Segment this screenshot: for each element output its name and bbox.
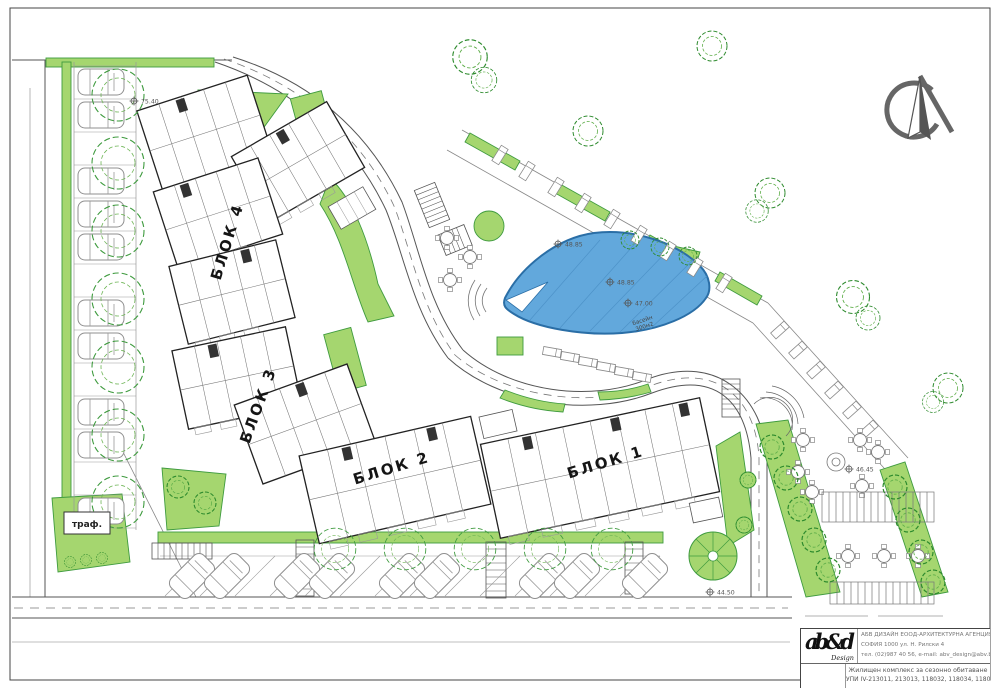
table-icon — [837, 545, 860, 568]
lounger-icon — [519, 161, 535, 181]
building-terrace — [479, 409, 517, 438]
table-icon — [439, 269, 462, 292]
lounger-icon — [632, 371, 651, 382]
project-info: Жилищен комплекс за сезонно обитаване УП… — [846, 664, 990, 688]
car-icon — [78, 399, 124, 425]
lounger-icon — [578, 356, 597, 367]
tree-icon — [573, 116, 603, 146]
lounger-icon — [542, 346, 561, 357]
table-icon — [436, 227, 459, 250]
hedge-bottom — [158, 532, 663, 543]
agency-info: АБВ ДИЗАЙН ЕООД-АРХИТЕКТУРНА АГЕНЦИЯ СОФ… — [858, 629, 990, 663]
title-block-project-row: Жилищен комплекс за сезонно обитаване УП… — [801, 664, 990, 688]
car-icon — [552, 551, 603, 602]
elevation-value: 48.85 — [617, 280, 635, 287]
lounger-icon — [596, 361, 615, 372]
lounger-icon — [771, 321, 790, 339]
table-icon — [867, 441, 890, 464]
table-icon — [873, 545, 896, 568]
agency-logo-script: Design — [831, 654, 854, 662]
car-icon — [78, 333, 124, 359]
car-icon — [78, 168, 124, 194]
hedge-left — [62, 62, 71, 530]
transformer-label: траф. — [72, 520, 102, 530]
tree-icon — [453, 40, 488, 75]
transformer-station: траф. — [64, 512, 110, 534]
site-plan-drawing: траф. БЛОК 4 БЛОК 3 БЛОК 2 БЛОК 1 басейн… — [0, 0, 1000, 688]
north-arrow-icon — [887, 76, 952, 140]
site-plan-sheet: траф. БЛОК 4 БЛОК 3 БЛОК 2 БЛОК 1 басейн… — [0, 0, 1000, 688]
elevation-value: 46.45 — [856, 467, 874, 474]
title-block-spare-cell — [801, 664, 846, 688]
agency-name: АБВ ДИЗАЙН ЕООД-АРХИТЕКТУРНА АГЕНЦИЯ — [861, 632, 987, 640]
lounger-icon — [807, 361, 826, 379]
bottom-parking — [165, 551, 670, 602]
pool-steps — [468, 280, 487, 320]
tree-icon — [746, 200, 769, 223]
parked-cars-bottom — [167, 551, 671, 602]
car-icon — [78, 69, 124, 95]
elevation-marker-icon — [845, 465, 854, 474]
car-icon — [202, 551, 253, 602]
car-icon — [412, 551, 463, 602]
lounger-icon — [614, 366, 633, 377]
elevation-marker-icon — [706, 588, 715, 597]
building-terrace — [689, 497, 723, 523]
agency-logo-icon: ab&d — [805, 629, 851, 654]
lounger-icon — [789, 341, 808, 359]
tree-icon — [697, 31, 727, 61]
elevation-value: 47.00 — [635, 301, 653, 308]
lounger-icon — [843, 401, 862, 419]
title-block: ab&d Design АБВ ДИЗАЙН ЕООД-АРХИТЕКТУРНА… — [800, 628, 990, 688]
tree-icon — [471, 67, 497, 93]
lounger-icon — [825, 381, 844, 399]
umbrella-icon — [827, 453, 845, 471]
car-icon — [78, 300, 124, 326]
round-gazebo — [689, 532, 737, 580]
tree-icon — [933, 373, 963, 403]
lounger-icon — [560, 351, 579, 362]
tree-icon — [856, 306, 880, 330]
title-block-agency-row: ab&d Design АБВ ДИЗАЙН ЕООД-АРХИТЕКТУРНА… — [801, 629, 990, 664]
tree-icon — [923, 392, 944, 413]
elevation-marker-icon — [130, 97, 139, 106]
elevation-value: 48.85 — [565, 242, 583, 249]
agency-address: СОФИЯ 1000 ул. Н. Рилски 4 — [861, 642, 987, 650]
elevation-value: 75.40 — [141, 99, 159, 106]
tree-icon — [837, 281, 870, 314]
project-title: Жилищен комплекс за сезонно обитаване — [846, 667, 990, 674]
elevation-value: 44.50 — [717, 590, 735, 597]
car-icon — [78, 234, 124, 260]
table-icon — [851, 475, 874, 498]
agency-contacts: тел. (02)987 40 56, e-mail: abv_design@a… — [861, 652, 987, 660]
project-upi: УПИ IV-213011, 213013, 118032, 118034, 1… — [846, 676, 990, 683]
agency-logo: ab&d Design — [801, 629, 858, 663]
tree-icon — [755, 178, 785, 208]
